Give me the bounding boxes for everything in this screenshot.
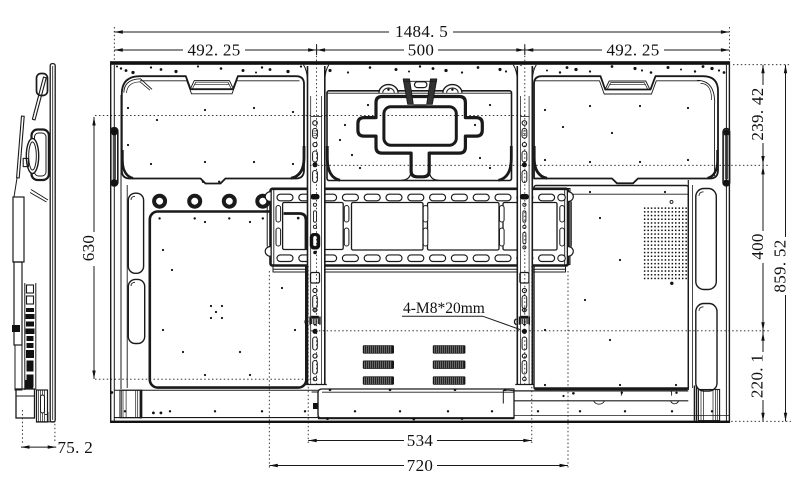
svg-text:4-M8*20mm: 4-M8*20mm (403, 300, 485, 317)
svg-text:1484. 5: 1484. 5 (395, 22, 448, 41)
svg-text:492. 25: 492. 25 (606, 41, 659, 60)
svg-text:630: 630 (79, 235, 98, 261)
svg-text:400: 400 (748, 233, 767, 259)
svg-text:220. 1: 220. 1 (748, 354, 767, 398)
svg-text:500: 500 (408, 41, 434, 60)
svg-text:492. 25: 492. 25 (187, 41, 240, 60)
svg-text:720: 720 (407, 456, 433, 475)
svg-text:534: 534 (407, 431, 434, 450)
svg-text:75. 2: 75. 2 (58, 438, 94, 457)
svg-text:239. 42: 239. 42 (748, 87, 767, 140)
svg-text:859. 52: 859. 52 (771, 239, 790, 292)
